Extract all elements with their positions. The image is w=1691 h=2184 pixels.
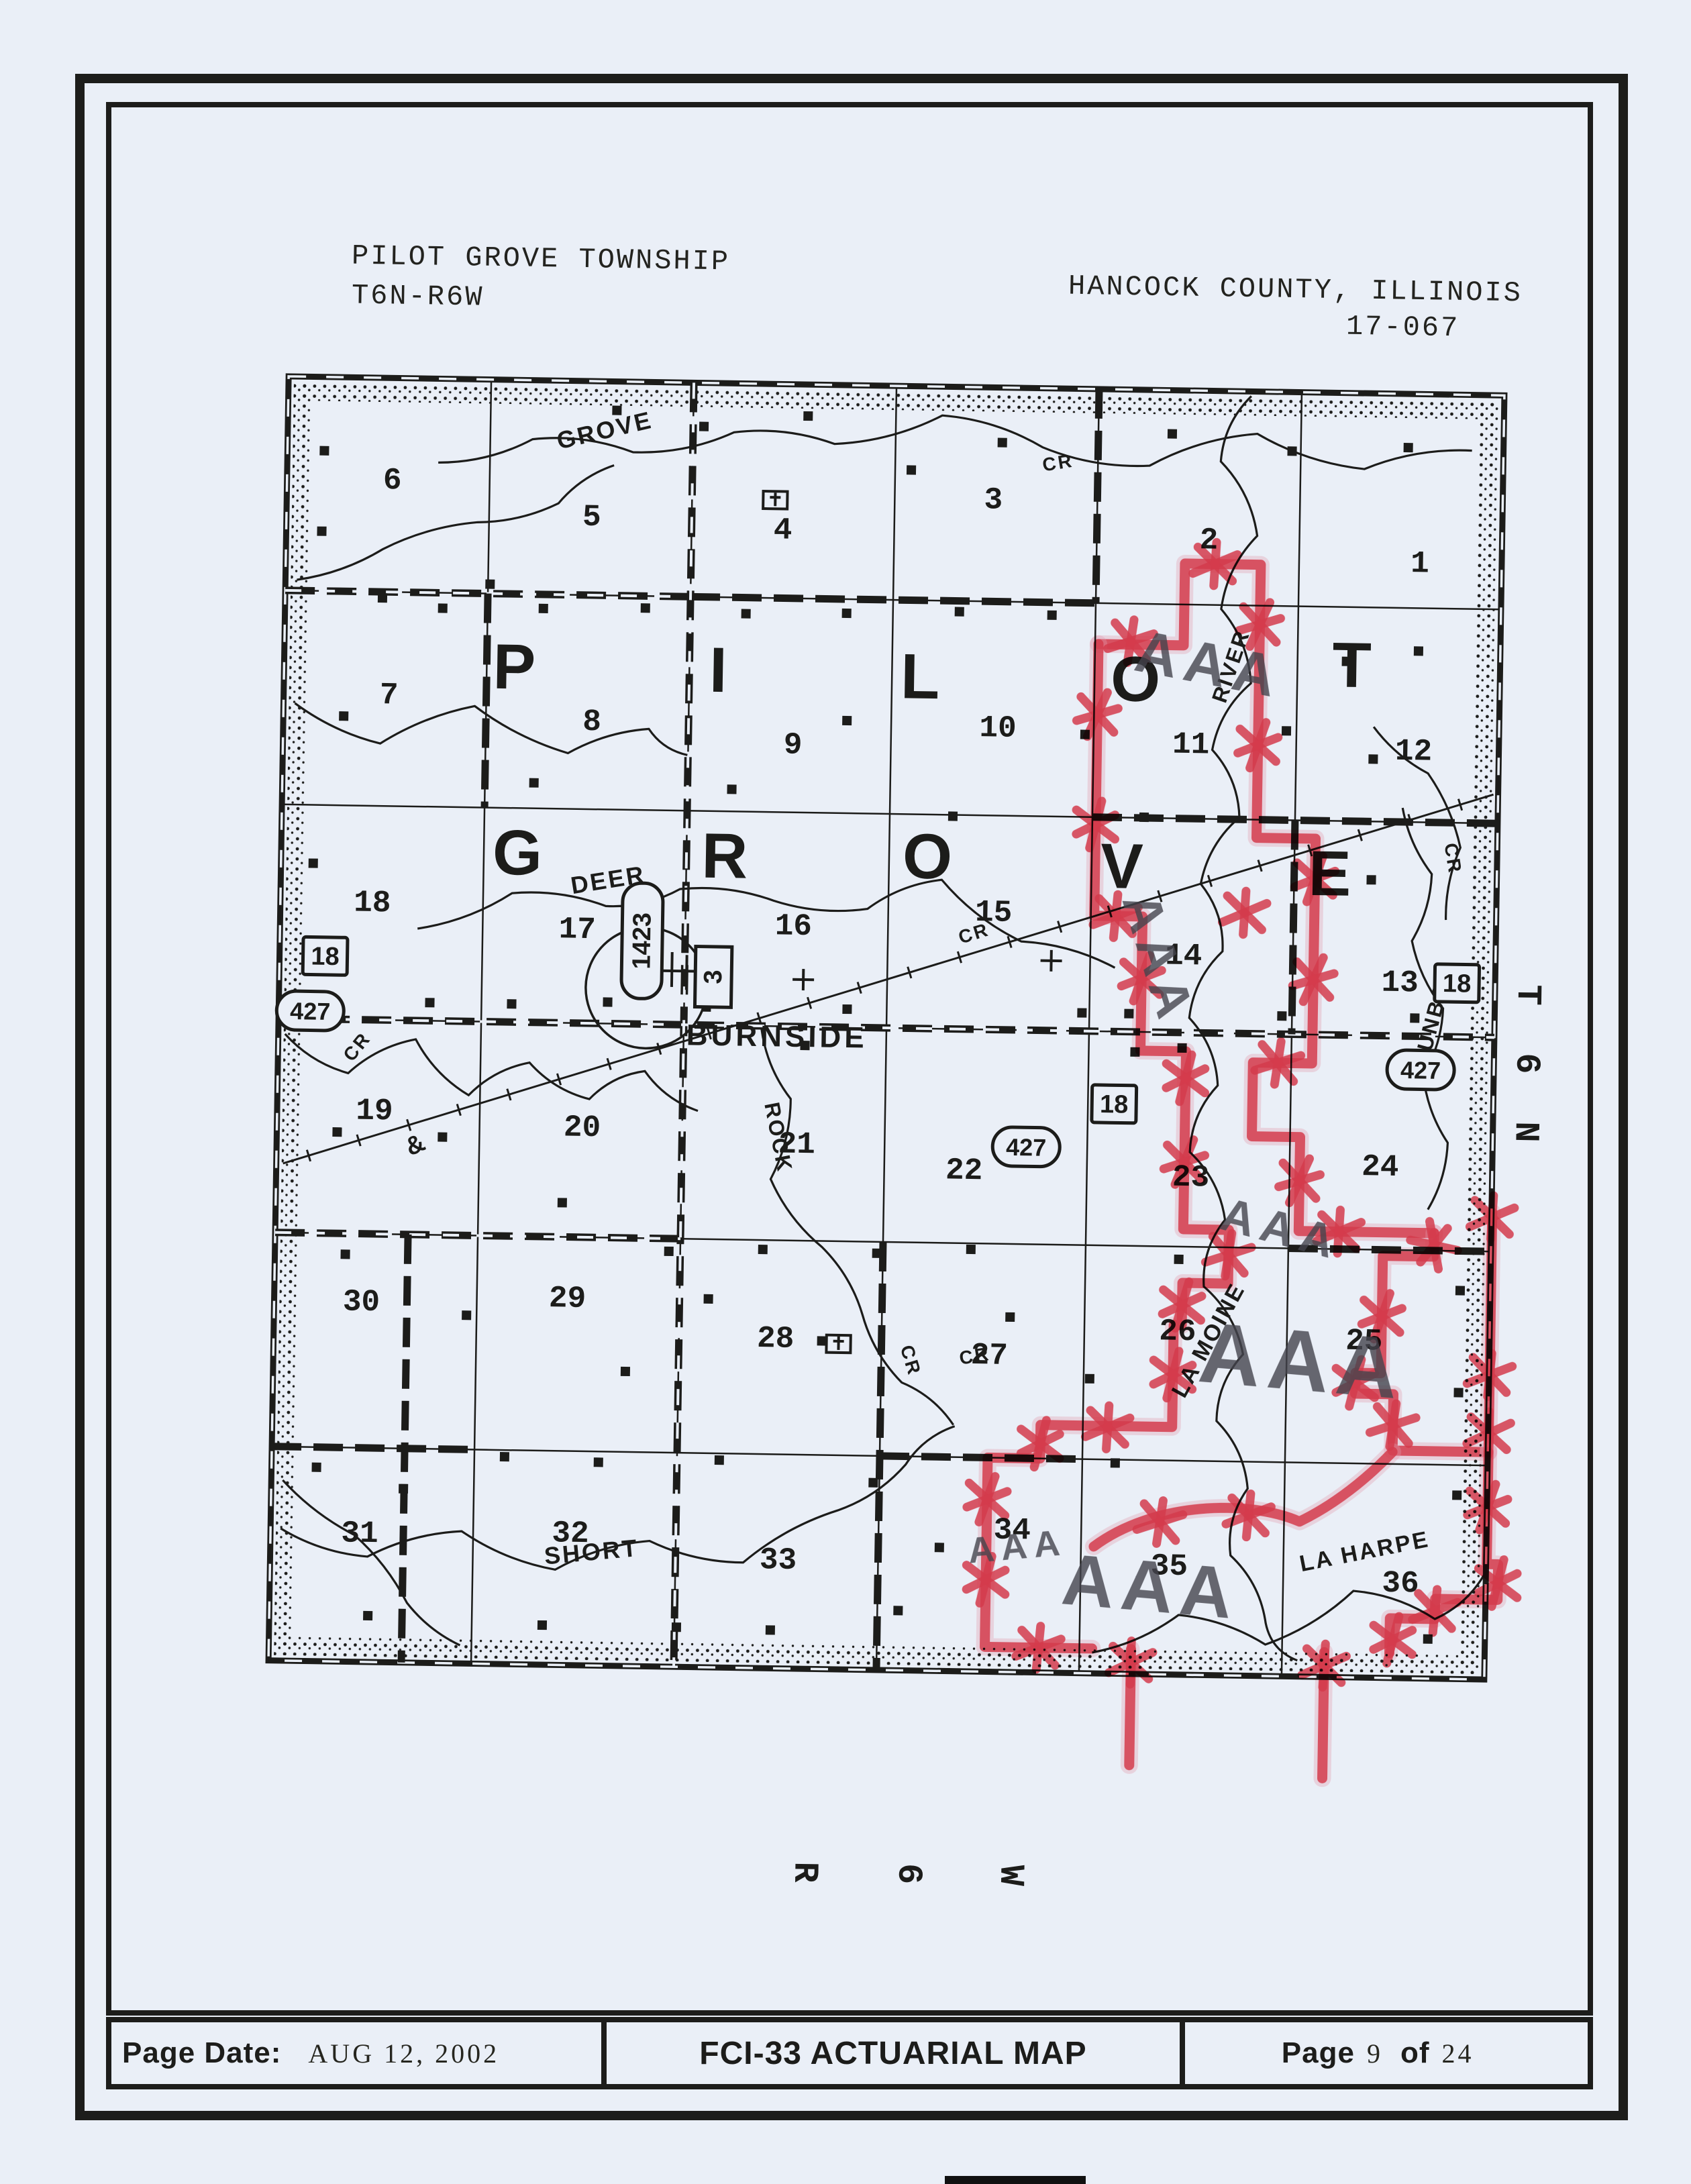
building-marker-icon (1287, 446, 1296, 456)
svg-text:427: 427 (1400, 1056, 1441, 1084)
footer-title-cell: FCI-33 ACTUARIAL MAP (607, 2022, 1186, 2084)
town-label: BURNSIDE (686, 1019, 868, 1054)
building-marker-icon (399, 1484, 408, 1494)
section-number: 29 (549, 1281, 586, 1316)
building-marker-icon (332, 1127, 342, 1137)
scan-edge-artifact (945, 2176, 1086, 2184)
building-marker-icon (1282, 726, 1291, 735)
township-plat-map: PILOTGROVE654321789101112181716151413192… (0, 0, 1691, 2184)
church-icon (763, 491, 787, 509)
section-number: 36 (1382, 1566, 1419, 1602)
building-marker-icon (1139, 813, 1149, 822)
route-shield-427: 427 (992, 1127, 1060, 1167)
footer-date-cell: Page Date: AUG 12, 2002 (111, 2022, 607, 2084)
section-number: 30 (342, 1284, 380, 1320)
building-marker-icon (1452, 1490, 1462, 1500)
building-marker-icon (1005, 1312, 1015, 1322)
building-marker-icon (378, 593, 387, 603)
section-number: 11 (1172, 727, 1210, 763)
building-marker-icon (955, 607, 964, 617)
section-number: 17 (558, 912, 596, 947)
svg-text:18: 18 (1100, 1090, 1129, 1119)
building-marker-icon (872, 1249, 882, 1258)
section-number: 1 (1411, 546, 1429, 581)
section-number: 6 (383, 463, 402, 498)
section-number: 24 (1362, 1149, 1399, 1185)
township-label-char: T (1508, 984, 1547, 1006)
creek (280, 1480, 463, 1645)
road-label: CR (896, 1343, 925, 1379)
building-marker-icon (507, 999, 516, 1008)
building-marker-icon (485, 580, 495, 589)
range-label-char: 6 (888, 1863, 928, 1885)
church-icon (826, 1335, 850, 1353)
building-marker-icon (817, 1336, 827, 1345)
svg-text:427: 427 (1006, 1133, 1047, 1161)
section-number: 9 (783, 728, 802, 763)
section-number: 19 (356, 1094, 393, 1129)
building-marker-icon (1085, 1374, 1094, 1384)
route-shield-3: 3 (695, 947, 731, 1008)
svg-text:427: 427 (290, 997, 331, 1025)
footer-title-block: Page Date: AUG 12, 2002 FCI-33 ACTUARIAL… (106, 2017, 1593, 2089)
building-marker-icon (842, 716, 852, 725)
building-marker-icon (621, 1367, 630, 1376)
route-shield-18: 18 (1092, 1085, 1137, 1123)
building-marker-icon (741, 609, 751, 619)
building-marker-icon (998, 437, 1007, 447)
of-label: of (1400, 2036, 1430, 2070)
route-shield-18: 18 (303, 937, 348, 975)
page-total: 24 (1441, 2038, 1474, 2069)
building-marker-icon (664, 1247, 674, 1256)
red-x-mark-icon (1221, 888, 1268, 937)
section-number: 33 (760, 1543, 797, 1578)
building-marker-icon (868, 1478, 878, 1488)
section-number: 16 (774, 908, 812, 944)
section-number: 7 (379, 678, 398, 713)
township-name-letter: R (701, 821, 748, 892)
township-name-letter: L (900, 641, 940, 713)
building-marker-icon (309, 858, 318, 868)
building-marker-icon (594, 1457, 603, 1467)
building-marker-icon (699, 422, 709, 431)
township-label-char: N (1505, 1121, 1545, 1143)
footer-page-cell: Page 9 of 24 (1185, 2022, 1588, 2084)
creek (1179, 395, 1317, 1661)
section-number: 13 (1381, 966, 1419, 1001)
building-marker-icon (842, 609, 852, 618)
page-label: Page (1282, 2036, 1355, 2070)
building-marker-icon (558, 1198, 567, 1207)
building-marker-icon (1077, 1008, 1086, 1017)
building-marker-icon (603, 997, 612, 1006)
building-marker-icon (893, 1606, 903, 1615)
building-marker-icon (907, 465, 916, 474)
building-marker-icon (537, 1620, 547, 1630)
building-marker-icon (948, 811, 958, 821)
page-number: 9 (1367, 2038, 1383, 2069)
building-marker-icon (1455, 1286, 1465, 1295)
section-number: 31 (341, 1516, 378, 1551)
building-marker-icon (425, 998, 434, 1007)
building-marker-icon (1368, 754, 1378, 764)
building-marker-icon (539, 604, 548, 613)
section-number: 10 (979, 711, 1017, 746)
building-marker-icon (1168, 429, 1177, 438)
section-number: 3 (984, 482, 1003, 517)
creek (294, 703, 688, 755)
map-series-title: FCI-33 ACTUARIAL MAP (699, 2035, 1086, 2072)
building-marker-icon (803, 411, 813, 421)
road-label: GROVE (554, 406, 656, 455)
building-marker-icon (1453, 1388, 1463, 1397)
route-shield-427: 427 (276, 991, 344, 1031)
section-number: 28 (757, 1321, 795, 1357)
road-label: & (401, 1128, 431, 1162)
building-marker-icon (340, 1249, 350, 1259)
building-marker-icon (1174, 1255, 1184, 1264)
building-marker-icon (312, 1463, 321, 1472)
township-label-char: 6 (1506, 1053, 1546, 1074)
section-number: 4 (773, 513, 792, 548)
building-marker-icon (1366, 875, 1376, 884)
range-label-char: W (990, 1865, 1030, 1887)
township-name-letter: T (1332, 629, 1372, 701)
section-number: 20 (564, 1110, 601, 1145)
svg-text:1423: 1423 (627, 913, 656, 970)
township-name-letter: O (902, 821, 953, 892)
building-marker-icon (462, 1310, 471, 1320)
road-label: CR (1041, 450, 1075, 476)
page-date-value: AUG 12, 2002 (308, 2038, 499, 2069)
building-marker-icon (641, 603, 650, 613)
section-number: 5 (582, 500, 601, 535)
building-marker-icon (319, 446, 329, 456)
section-number: 8 (582, 705, 601, 739)
township-name-letter: P (493, 631, 536, 703)
section-number: 18 (354, 886, 391, 921)
range-label-char: R (784, 1861, 824, 1883)
building-marker-icon (758, 1245, 768, 1254)
cross-marker-icon (1051, 950, 1052, 972)
building-marker-icon (1047, 611, 1057, 620)
route-shield-1423: 1423 (621, 883, 664, 999)
building-marker-icon (727, 784, 736, 794)
building-marker-icon (500, 1452, 509, 1461)
township-name-letter: G (492, 817, 543, 889)
building-marker-icon (1111, 1458, 1120, 1467)
section-number: 12 (1395, 734, 1433, 770)
building-marker-icon (1414, 646, 1423, 656)
building-marker-icon (704, 1294, 713, 1304)
route-shield-18: 18 (1435, 964, 1480, 1002)
building-marker-icon (339, 711, 348, 721)
building-marker-icon (935, 1543, 944, 1552)
building-marker-icon (529, 778, 539, 788)
township-name-letter: V (1100, 831, 1143, 902)
building-marker-icon (1404, 443, 1413, 452)
building-marker-icon (317, 527, 326, 536)
road-label: CR (1440, 841, 1466, 876)
building-marker-icon (766, 1625, 775, 1634)
building-marker-icon (672, 1622, 681, 1632)
section-number: 22 (945, 1153, 983, 1188)
scanned-map-page: PILOT GROVE TOWNSHIP T6N-R6W HANCOCK COU… (0, 0, 1691, 2184)
aaa-rate-area-label: AAA (966, 1522, 1068, 1571)
svg-text:3: 3 (699, 970, 727, 984)
building-marker-icon (438, 603, 448, 613)
building-marker-icon (438, 1133, 447, 1142)
creek (297, 460, 614, 584)
road-label: CR (956, 919, 992, 947)
township-name-letter: I (709, 635, 727, 706)
building-marker-icon (966, 1245, 976, 1254)
cross-marker-icon (803, 969, 804, 990)
building-marker-icon (1410, 1013, 1419, 1023)
aaa-rate-area-label: AAA (1059, 1538, 1242, 1634)
building-marker-icon (363, 1611, 372, 1620)
map-content-layer: PILOTGROVE654321789101112181716151413192… (263, 376, 1557, 1895)
building-marker-icon (715, 1455, 724, 1465)
creek (756, 1029, 960, 1425)
aaa-rate-area-label: AAA (1195, 1304, 1408, 1418)
building-marker-icon (1277, 1011, 1286, 1021)
page-date-label: Page Date: (122, 2036, 281, 2070)
route-shield-427: 427 (1387, 1050, 1455, 1090)
building-marker-icon (842, 1004, 852, 1014)
svg-text:18: 18 (1443, 970, 1472, 998)
road-label: CR (339, 1028, 374, 1065)
svg-text:18: 18 (311, 943, 340, 972)
